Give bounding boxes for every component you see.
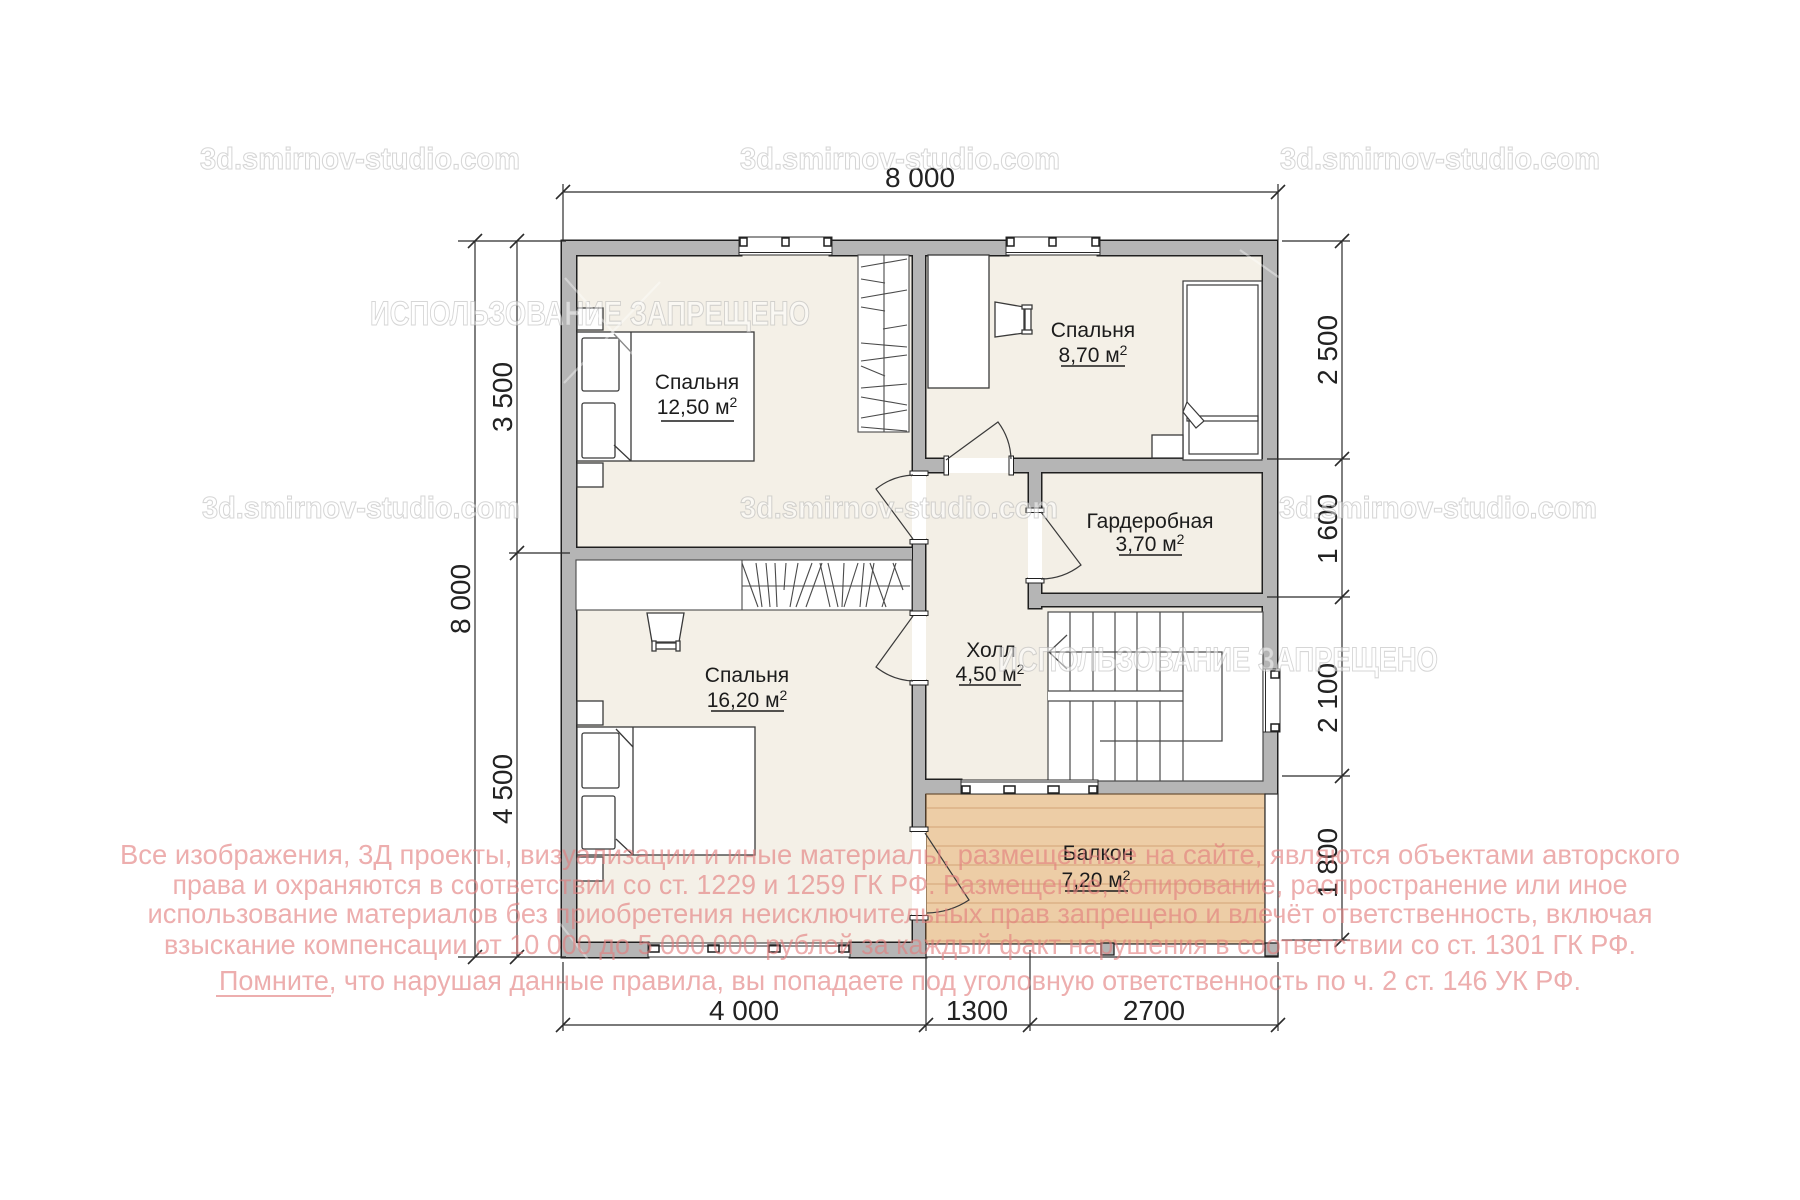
svg-text:12,50 м2: 12,50 м2 [657, 394, 738, 419]
svg-text:Спальня: Спальня [655, 371, 739, 394]
svg-text:Спальня: Спальня [1051, 319, 1135, 342]
svg-text:взыскание компенсации от 10 00: взыскание компенсации от 10 000 до 5 000… [164, 929, 1636, 960]
svg-text:3,70 м2: 3,70 м2 [1116, 531, 1185, 556]
svg-text:8 000: 8 000 [445, 564, 476, 634]
svg-text:3d.smirnov-studio.com: 3d.smirnov-studio.com [200, 141, 520, 176]
svg-text:Все изображения, 3Д проекты, в: Все изображения, 3Д проекты, визуализаци… [120, 839, 1680, 870]
svg-text:8,70 м2: 8,70 м2 [1059, 342, 1128, 367]
svg-text:1300: 1300 [946, 995, 1008, 1026]
svg-text:4 500: 4 500 [487, 754, 518, 824]
svg-text:2 500: 2 500 [1312, 315, 1343, 385]
svg-text:3d.smirnov-studio.com: 3d.smirnov-studio.com [1280, 141, 1600, 176]
svg-text:2700: 2700 [1123, 995, 1185, 1026]
svg-text:Спальня: Спальня [705, 664, 789, 687]
svg-text:ИСПОЛЬЗОВАНИЕ ЗАПРЕЩЕНО: ИСПОЛЬЗОВАНИЕ ЗАПРЕЩЕНО [370, 295, 810, 333]
svg-text:ИСПОЛЬЗОВАНИЕ ЗАПРЕЩЕНО: ИСПОЛЬЗОВАНИЕ ЗАПРЕЩЕНО [998, 641, 1438, 679]
svg-text:3d.smirnov-studio.com: 3d.smirnov-studio.com [202, 490, 520, 525]
svg-text:3 500: 3 500 [487, 362, 518, 432]
svg-text:3d.smirnov-studio.com: 3d.smirnov-studio.com [740, 490, 1058, 525]
svg-text:3d.smirnov-studio.com: 3d.smirnov-studio.com [740, 141, 1060, 176]
svg-text:4 000: 4 000 [709, 995, 779, 1026]
svg-text:3d.smirnov-studio.com: 3d.smirnov-studio.com [1279, 490, 1597, 525]
svg-text:использование материалов без п: использование материалов без приобретени… [148, 898, 1653, 929]
svg-text:Гардеробная: Гардеробная [1086, 510, 1213, 533]
svg-text:Помните, что нарушая данные пр: Помните, что нарушая данные правила, вы … [219, 965, 1581, 996]
svg-text:16,20 м2: 16,20 м2 [707, 687, 788, 712]
svg-text:права и охраняются в соответст: права и охраняются в соответствии со ст.… [173, 869, 1628, 900]
